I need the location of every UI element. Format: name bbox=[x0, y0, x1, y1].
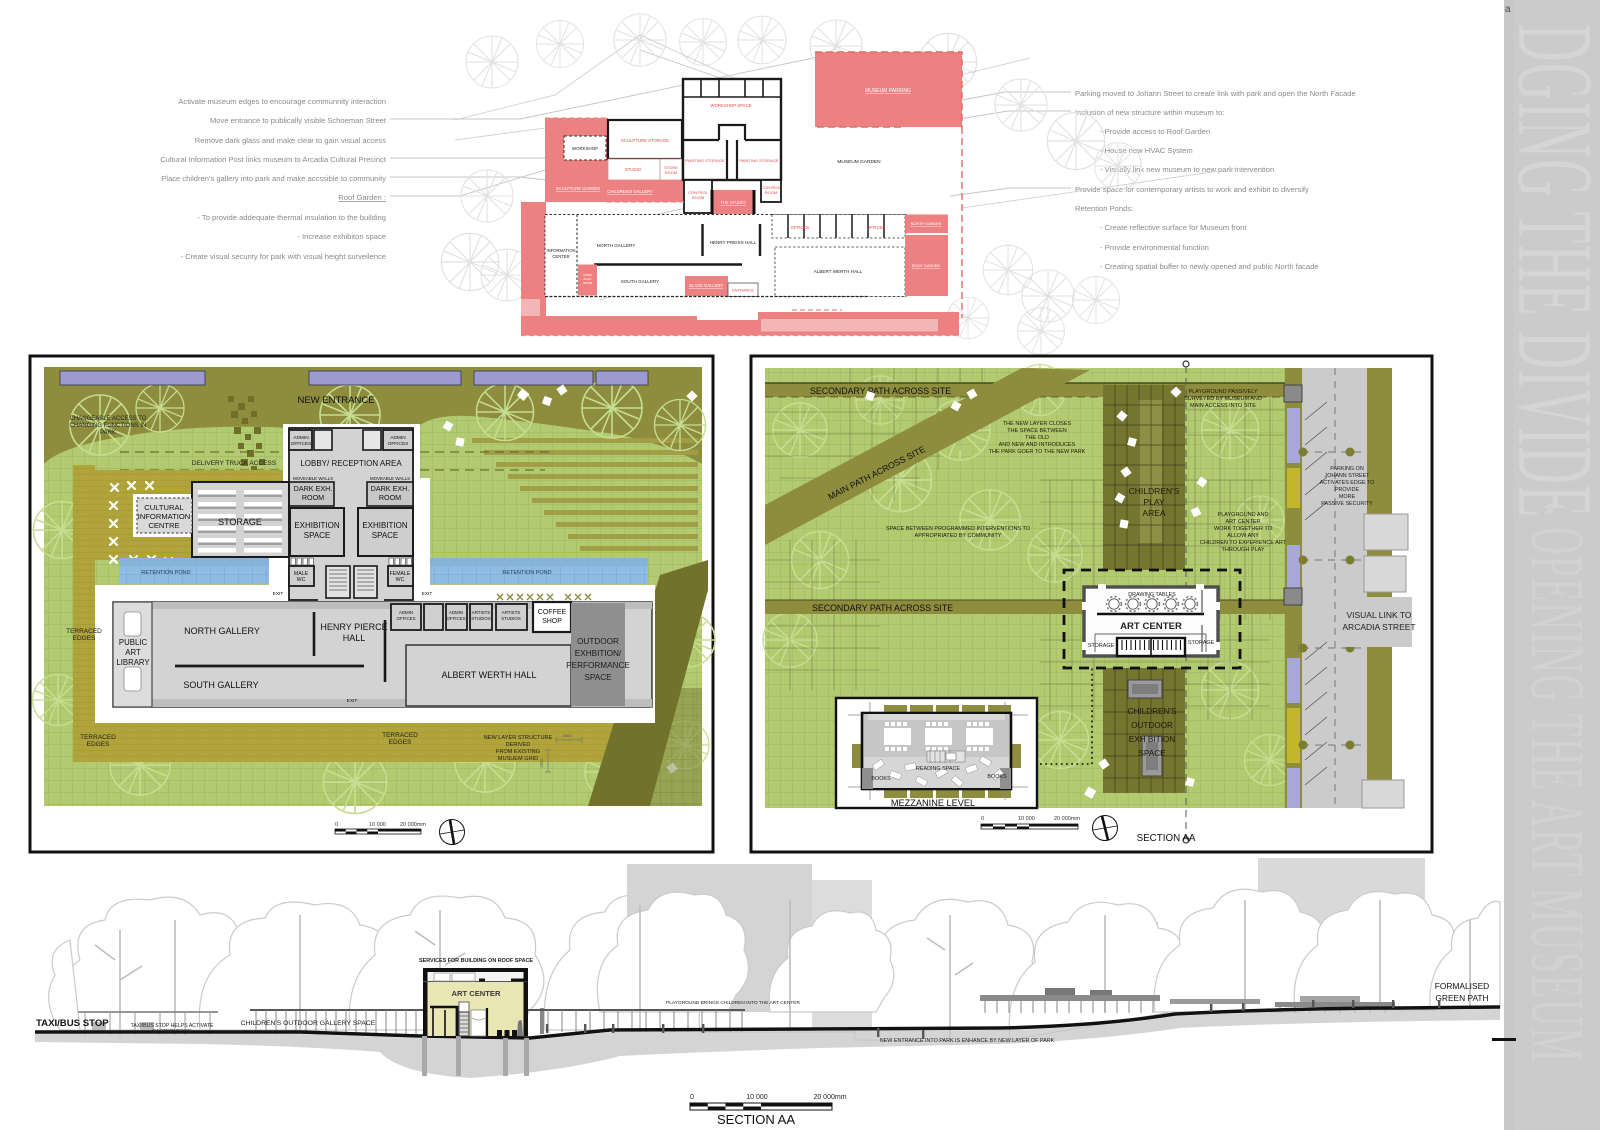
svg-text:NORTH GALLERY: NORTH GALLERY bbox=[184, 626, 260, 636]
svg-text:SERVICES FOR BUILDING ON ROOF: SERVICES FOR BUILDING ON ROOF SPACE bbox=[419, 958, 533, 964]
svg-text:MOVEABLE WALLS: MOVEABLE WALLS bbox=[293, 476, 333, 481]
svg-text:PLAYGROUND PASSIVELY: PLAYGROUND PASSIVELY bbox=[1188, 389, 1257, 395]
svg-text:SHOP: SHOP bbox=[542, 618, 562, 625]
svg-text:EXH BITION: EXH BITION bbox=[1129, 735, 1175, 744]
svg-text:LIBRARY: LIBRARY bbox=[116, 658, 150, 667]
svg-text:Retention Ponds:: Retention Ponds: bbox=[1075, 204, 1133, 213]
svg-text:TAXI/BUS STOP: TAXI/BUS STOP bbox=[36, 1018, 109, 1029]
svg-text:MAIN ACCESS INTO SITE: MAIN ACCESS INTO SITE bbox=[1190, 403, 1256, 409]
svg-text:10 000: 10 000 bbox=[746, 1094, 768, 1101]
svg-text:WORK TOGETHER TO: WORK TOGETHER TO bbox=[1214, 526, 1273, 532]
svg-text:WC: WC bbox=[396, 577, 405, 583]
svg-text:DARK EXH.: DARK EXH. bbox=[371, 484, 410, 493]
svg-text:PLAYGROUND AND: PLAYGROUND AND bbox=[1218, 512, 1269, 518]
svg-text:ARTISTS: ARTISTS bbox=[502, 610, 521, 615]
svg-text:SURVEYED BY MUSEUM AND: SURVEYED BY MUSEUM AND bbox=[1184, 396, 1262, 402]
svg-text:HENRY PREISS HALL: HENRY PREISS HALL bbox=[710, 240, 757, 245]
svg-text:HENRY PIERCE: HENRY PIERCE bbox=[320, 622, 387, 632]
svg-text:PASSIVE SECURITY: PASSIVE SECURITY bbox=[1321, 501, 1373, 507]
svg-text:PERFORMANCE: PERFORMANCE bbox=[566, 661, 630, 670]
svg-text:Place children's gallery into: Place children's gallery into park and m… bbox=[161, 174, 386, 183]
svg-text:THE STUDIO: THE STUDIO bbox=[720, 200, 746, 205]
svg-text:ADMIN: ADMIN bbox=[293, 435, 309, 441]
svg-text:ALLOW ANY: ALLOW ANY bbox=[1227, 533, 1259, 539]
svg-text:MUSEUM PARKING: MUSEUM PARKING bbox=[865, 88, 911, 94]
svg-text:EXHIBITION: EXHIBITION bbox=[362, 521, 408, 530]
svg-text:WC: WC bbox=[297, 577, 306, 583]
svg-text:THE PARK GOER TO THE NEW PARK: THE PARK GOER TO THE NEW PARK bbox=[989, 449, 1086, 455]
svg-text:- OPENING THE ART MUSEUM: - OPENING THE ART MUSEUM bbox=[1515, 502, 1599, 1063]
svg-text:STUDIO: STUDIO bbox=[625, 167, 642, 172]
svg-text:NEW LAYER STRUCTURE: NEW LAYER STRUCTURE bbox=[484, 735, 553, 741]
svg-text:NEW ENTRANCE INTO PARK IS ENHA: NEW ENTRANCE INTO PARK IS ENHANCE BY NEW… bbox=[880, 1038, 1055, 1044]
svg-text:READING SPACE: READING SPACE bbox=[916, 766, 960, 772]
svg-text:EDGES: EDGES bbox=[87, 741, 110, 748]
svg-text:ROOM: ROOM bbox=[583, 281, 593, 285]
svg-text:20 000mm: 20 000mm bbox=[400, 822, 426, 828]
svg-text:- Increase exhibiton space: - Increase exhibiton space bbox=[297, 232, 386, 241]
svg-text:2500: 2500 bbox=[563, 733, 573, 738]
svg-text:PARK: PARK bbox=[100, 430, 116, 436]
svg-text:ART CENTER: ART CENTER bbox=[452, 989, 501, 998]
svg-text:ARCADIA STREET: ARCADIA STREET bbox=[1342, 622, 1415, 632]
svg-text:ALBERT WERTH HALL: ALBERT WERTH HALL bbox=[814, 269, 863, 274]
svg-text:SPACE: SPACE bbox=[1138, 749, 1166, 758]
svg-text:Remove dark glass and make cle: Remove dark glass and make clear to gain… bbox=[195, 136, 386, 145]
svg-text:PLAYGROUND BRINGS CHILDREN INT: PLAYGROUND BRINGS CHILDREN INTO THE ART … bbox=[666, 1000, 800, 1006]
svg-text:SECTION AA: SECTION AA bbox=[1137, 833, 1196, 844]
svg-text:DERIVED: DERIVED bbox=[506, 742, 531, 748]
svg-text:DARK EXH.: DARK EXH. bbox=[294, 484, 333, 493]
svg-text:WORKSHOP: WORKSHOP bbox=[572, 146, 598, 151]
svg-text:CHILDREN'S OUTDOOR GALLERY SPA: CHILDREN'S OUTDOOR GALLERY SPACE bbox=[241, 1020, 376, 1027]
svg-text:ROOM: ROOM bbox=[302, 493, 324, 502]
svg-text:ART CENTER: ART CENTER bbox=[1120, 621, 1182, 632]
svg-text:EXIT: EXIT bbox=[347, 698, 358, 704]
svg-text:JOHANN STREET: JOHANN STREET bbox=[1325, 473, 1371, 479]
svg-text:OFFICES: OFFICES bbox=[396, 616, 415, 621]
svg-text:0: 0 bbox=[690, 1094, 694, 1101]
svg-text:CULTURAL: CULTURAL bbox=[144, 503, 184, 512]
svg-text:SCULPTURE GARDEN: SCULPTURE GARDEN bbox=[556, 186, 600, 191]
svg-text:STORAGE: STORAGE bbox=[218, 517, 262, 527]
svg-text:PUBLIC: PUBLIC bbox=[119, 638, 148, 647]
svg-text:Inclusion of new structure wit: Inclusion of new structure within museum… bbox=[1075, 108, 1224, 117]
svg-text:THE OLD: THE OLD bbox=[1025, 435, 1049, 441]
svg-text:STUDIOS: STUDIOS bbox=[501, 616, 521, 621]
svg-text:ALBERT WERTH HALL: ALBERT WERTH HALL bbox=[441, 670, 536, 680]
svg-text:SECONDARY PATH ACROSS SITE: SECONDARY PATH ACROSS SITE bbox=[812, 603, 953, 613]
svg-text:ART: ART bbox=[125, 648, 141, 657]
svg-text:SPACE: SPACE bbox=[304, 531, 331, 540]
svg-text:MORE: MORE bbox=[1339, 494, 1356, 500]
svg-text:DELIVERY TRUCK ACCESS: DELIVERY TRUCK ACCESS bbox=[192, 460, 277, 467]
svg-text:ADMIN: ADMIN bbox=[449, 610, 463, 615]
svg-text:OFFICES: OFFICES bbox=[867, 225, 885, 230]
svg-text:EASTERNEDGE: EASTERNEDGE bbox=[152, 1029, 192, 1035]
svg-text:- House new HVAC System: - House new HVAC System bbox=[1100, 146, 1193, 155]
svg-text:CHANGEABLE ACCESS TO: CHANGEABLE ACCESS TO bbox=[70, 416, 147, 422]
svg-text:ROOF GARDEN: ROOF GARDEN bbox=[912, 264, 941, 268]
svg-text:SPACE: SPACE bbox=[584, 673, 612, 682]
svg-text:MUSEUM GARDEN: MUSEUM GARDEN bbox=[837, 159, 881, 165]
svg-text:BOOKS: BOOKS bbox=[871, 776, 891, 782]
svg-text:NORTH GALLERY: NORTH GALLERY bbox=[597, 243, 636, 248]
svg-text:SECTION AA: SECTION AA bbox=[717, 1112, 795, 1127]
svg-text:OFFICES: OFFICES bbox=[291, 441, 312, 447]
svg-text:- Provide environmental functi: - Provide environmental function bbox=[1100, 243, 1209, 252]
svg-text:ADMIN: ADMIN bbox=[399, 610, 413, 615]
svg-text:ROOM: ROOM bbox=[692, 195, 704, 200]
svg-text:NORTH GARDEN: NORTH GARDEN bbox=[911, 222, 942, 226]
svg-text:FROM EXISTING: FROM EXISTING bbox=[496, 749, 540, 755]
svg-text:ENTRANCE: ENTRANCE bbox=[732, 288, 754, 293]
svg-text:WORKSHOP SPACE: WORKSHOP SPACE bbox=[711, 103, 752, 108]
svg-text:PLAY: PLAY bbox=[1143, 497, 1164, 507]
svg-text:10 000: 10 000 bbox=[369, 822, 386, 828]
svg-text:SOUTH GALLERY: SOUTH GALLERY bbox=[621, 279, 659, 284]
svg-text:ROOM: ROOM bbox=[379, 493, 401, 502]
svg-text:ARTISTS: ARTISTS bbox=[472, 610, 491, 615]
svg-text:THE SPACE BETWEEN: THE SPACE BETWEEN bbox=[1007, 428, 1067, 434]
svg-text:TERRACED: TERRACED bbox=[80, 734, 116, 741]
svg-text:HALL: HALL bbox=[343, 633, 366, 643]
svg-text:VISUAL LINK TO: VISUAL LINK TO bbox=[1346, 610, 1411, 620]
svg-text:FORMALISED: FORMALISED bbox=[1435, 981, 1489, 991]
svg-text:OFFICES: OFFICES bbox=[388, 441, 409, 447]
svg-text:CHILDREN'S: CHILDREN'S bbox=[1128, 707, 1177, 716]
svg-text:- To provide addequate therma: - To provide addequate thermal insulatio… bbox=[197, 213, 386, 222]
svg-text:LOBBY/ RECEPTION AREA: LOBBY/ RECEPTION AREA bbox=[300, 459, 402, 468]
svg-text:NEW ENTRANCE: NEW ENTRANCE bbox=[297, 395, 374, 406]
svg-text:APPROPRIATED BY COMMUNITY: APPROPRIATED BY COMMUNITY bbox=[915, 533, 1002, 539]
svg-text:RETENTION POND: RETENTION POND bbox=[502, 570, 551, 576]
svg-text:BOOKS: BOOKS bbox=[987, 774, 1007, 780]
svg-text:SCULPTURE STORAGE: SCULPTURE STORAGE bbox=[621, 138, 669, 143]
svg-text:CHILDREN TO EXPERIENCE ART: CHILDREN TO EXPERIENCE ART bbox=[1200, 540, 1287, 546]
svg-text:CENTRE: CENTRE bbox=[148, 521, 179, 530]
svg-text:Roof Garden :: Roof Garden : bbox=[338, 193, 386, 202]
svg-text:PAINTING STORAGE: PAINTING STORAGE bbox=[685, 158, 725, 163]
svg-text:a: a bbox=[1505, 4, 1511, 15]
svg-text:EXHBITION/: EXHBITION/ bbox=[575, 649, 622, 658]
svg-text:TERRACED: TERRACED bbox=[382, 732, 418, 739]
svg-text:CENTER: CENTER bbox=[552, 254, 569, 259]
svg-text:ROOM: ROOM bbox=[765, 190, 777, 195]
svg-text:ROOM: ROOM bbox=[665, 170, 677, 175]
svg-text:SPACE: SPACE bbox=[372, 531, 399, 540]
svg-text:SPACE BETWEEN PROGRAMMED INTER: SPACE BETWEEN PROGRAMMED INTERVENTIONS T… bbox=[886, 526, 1031, 532]
svg-text:ART CENTER: ART CENTER bbox=[1226, 519, 1261, 525]
svg-text:CHILDREN'S: CHILDREN'S bbox=[1129, 486, 1180, 496]
svg-text:THROUGH PLAY: THROUGH PLAY bbox=[1222, 547, 1265, 553]
svg-text:SECONDARY PATH ACROSS SITE: SECONDARY PATH ACROSS SITE bbox=[810, 386, 951, 396]
svg-text:0: 0 bbox=[335, 822, 338, 828]
svg-text:EDGES: EDGES bbox=[73, 635, 96, 642]
svg-text:THE NEW LAYER CLOSES: THE NEW LAYER CLOSES bbox=[1003, 421, 1072, 427]
svg-text:PARKING ON: PARKING ON bbox=[1330, 466, 1364, 472]
svg-text:- Creating spatial buffer to n: - Creating spatial buffer to newly opene… bbox=[1100, 262, 1319, 271]
svg-text:0: 0 bbox=[981, 816, 984, 822]
svg-text:- Create visual security for p: - Create visual security for park with v… bbox=[180, 252, 386, 261]
svg-text:20 000mm: 20 000mm bbox=[1054, 816, 1080, 822]
svg-text:INFORMATION: INFORMATION bbox=[138, 512, 191, 521]
svg-text:OFFICES: OFFICES bbox=[446, 616, 465, 621]
svg-text:DGING THE DIVIDE: DGING THE DIVIDE bbox=[1495, 24, 1600, 519]
svg-text:Parking moved to Johann Street: Parking moved to Johann Street to create… bbox=[1075, 89, 1356, 98]
svg-text:SOUTH GALLERY: SOUTH GALLERY bbox=[183, 680, 258, 690]
svg-text:Cultural Information Post link: Cultural Information Post links museum t… bbox=[160, 155, 387, 164]
svg-text:OUTDOOR: OUTDOOR bbox=[1131, 721, 1173, 730]
svg-text:MOVEABLE WALLS: MOVEABLE WALLS bbox=[370, 476, 410, 481]
svg-text:Move entrance to publically vi: Move entrance to publically visible Scho… bbox=[210, 116, 387, 125]
svg-text:2500: 2500 bbox=[539, 758, 544, 768]
svg-text:PROVIDE: PROVIDE bbox=[1335, 487, 1360, 493]
svg-text:ACTIVATES EDGE TO: ACTIVATES EDGE TO bbox=[1320, 480, 1375, 486]
svg-text:GREEN PATH: GREEN PATH bbox=[1435, 993, 1488, 1003]
svg-text:STORAGE: STORAGE bbox=[1088, 643, 1115, 649]
svg-text:TERRACED: TERRACED bbox=[66, 628, 102, 635]
svg-text:INFORMATION: INFORMATION bbox=[547, 248, 576, 253]
svg-text:Activate museum edges to encou: Activate museum edges to encourage commu… bbox=[178, 97, 386, 106]
svg-text:- Create reflective surface fo: - Create reflective surface for Museum f… bbox=[1100, 223, 1247, 232]
svg-text:ADMIN: ADMIN bbox=[390, 435, 406, 441]
svg-text:CHANGING FUNCTIONS IN: CHANGING FUNCTIONS IN bbox=[70, 423, 147, 429]
svg-text:MEZZANINE LEVEL: MEZZANINE LEVEL bbox=[891, 798, 975, 808]
svg-text:- Provide access to Roof Gard: - Provide access to Roof Garden bbox=[1100, 127, 1210, 136]
svg-text:GLASS GALLERY: GLASS GALLERY bbox=[689, 283, 724, 288]
svg-text:MUSUEM GRID: MUSUEM GRID bbox=[498, 756, 538, 762]
svg-text:EXHIBITION: EXHIBITION bbox=[294, 521, 340, 530]
svg-text:20 000mm: 20 000mm bbox=[813, 1094, 846, 1101]
svg-text:10 000: 10 000 bbox=[1018, 816, 1035, 822]
svg-text:AND NEW AND INTRODUCES: AND NEW AND INTRODUCES bbox=[999, 442, 1076, 448]
svg-text:STUDIOS: STUDIOS bbox=[471, 616, 491, 621]
svg-text:EXIT: EXIT bbox=[422, 591, 433, 597]
svg-text:OUTDOOR: OUTDOOR bbox=[577, 637, 619, 646]
svg-text:RETENTION POND: RETENTION POND bbox=[141, 570, 190, 576]
svg-text:STORAGE: STORAGE bbox=[1188, 640, 1215, 646]
svg-text:EDGES: EDGES bbox=[389, 739, 412, 746]
svg-text:AREA: AREA bbox=[1142, 508, 1165, 518]
svg-text:COFFEE: COFFEE bbox=[538, 609, 567, 616]
svg-text:OFFICES: OFFICES bbox=[791, 225, 809, 230]
svg-text:CHILDREN'S GALLERY: CHILDREN'S GALLERY bbox=[607, 189, 653, 194]
svg-text:EXIT: EXIT bbox=[273, 591, 284, 597]
svg-text:PAINTING STORAGE: PAINTING STORAGE bbox=[739, 158, 779, 163]
